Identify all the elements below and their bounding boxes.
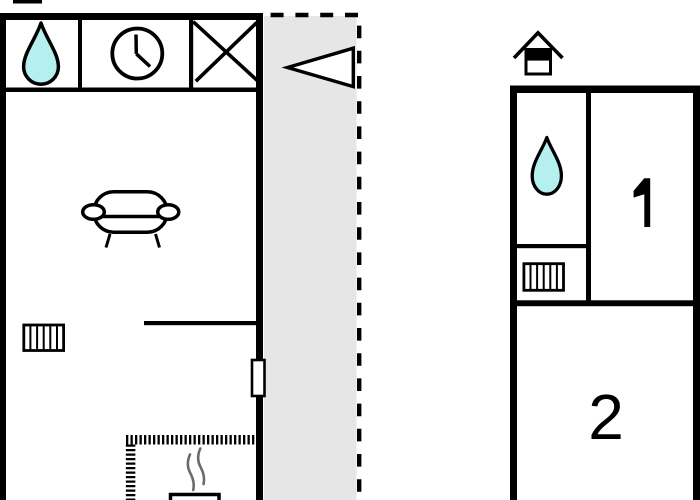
svg-text:2: 2 xyxy=(588,381,624,453)
